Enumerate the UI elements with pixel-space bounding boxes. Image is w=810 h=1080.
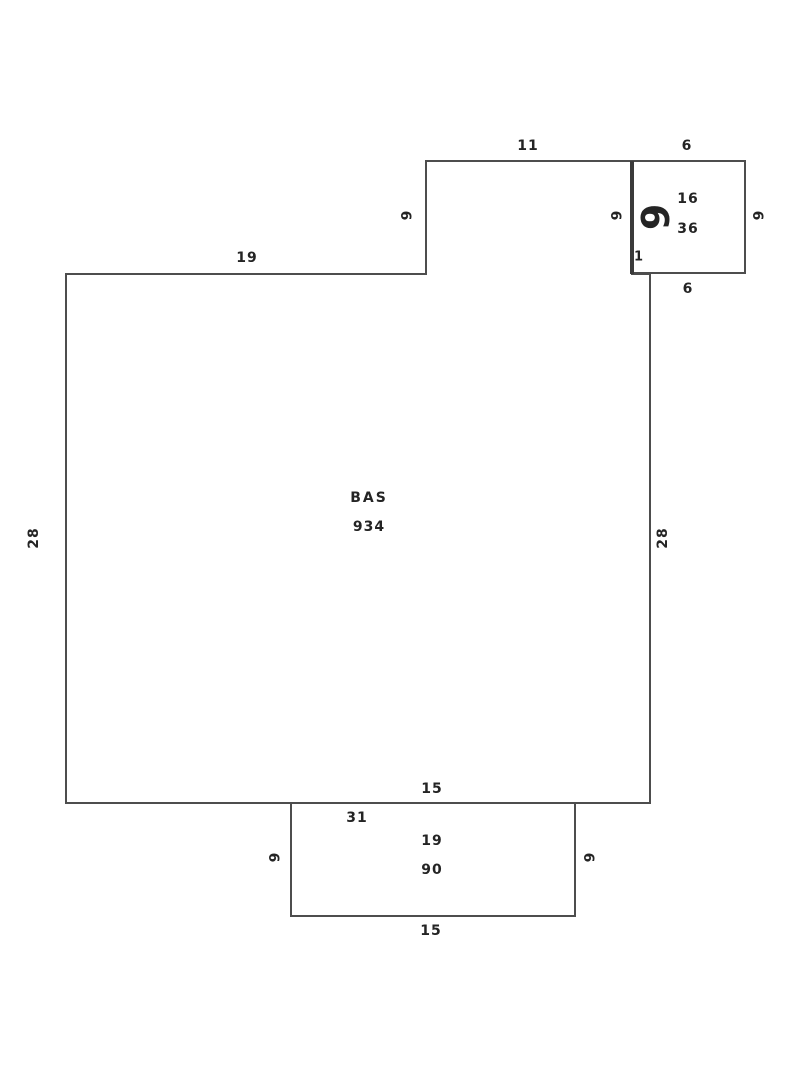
- dim-left-28: 28: [27, 527, 41, 548]
- floorplan-sketch: 11 6 19 6 6 6 16 36 6 1 6 28 28 BAS 934 …: [0, 0, 810, 1080]
- square-label-16: 16: [677, 192, 698, 206]
- dim-square-bottom-6: 6: [683, 282, 694, 296]
- dim-notch-6: 6: [398, 211, 412, 222]
- dim-rect-left-6: 6: [266, 853, 280, 864]
- sketch-outlines: [0, 0, 810, 1080]
- rect-label-19: 19: [421, 834, 442, 848]
- rect-area-90: 90: [421, 863, 442, 877]
- bottom-rect-outline: [291, 803, 575, 916]
- bas-area-value: 934: [353, 520, 385, 534]
- dim-square-right-6: 6: [750, 211, 764, 222]
- dim-square-top-6: 6: [682, 139, 693, 153]
- square-label-36: 36: [677, 222, 698, 236]
- dim-rect-right-6: 6: [581, 853, 595, 864]
- bas-outline: [66, 161, 650, 803]
- bas-area-name: BAS: [350, 491, 388, 505]
- dim-left-19: 19: [236, 251, 257, 265]
- dim-bottom-15: 15: [420, 924, 441, 938]
- dim-bottom-31: 31: [346, 811, 367, 825]
- dim-top-11: 11: [517, 139, 538, 153]
- dim-jog-1: 1: [634, 251, 644, 264]
- dim-square-big-6: 6: [635, 204, 673, 230]
- dim-inner-6: 6: [608, 211, 622, 222]
- dim-right-28: 28: [656, 527, 670, 548]
- dim-bottom-15-top: 15: [421, 782, 442, 796]
